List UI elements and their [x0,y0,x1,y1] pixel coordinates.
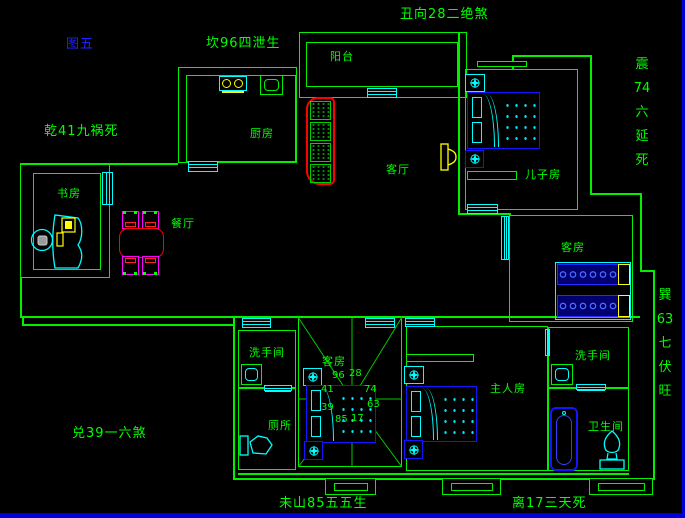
floor-plan-canvas: 96 28 41 74 39 63 85 17 [0,0,685,518]
bathtub [550,407,578,471]
burner-icon [222,79,231,88]
wall-top-left [20,163,178,165]
dining-chair [122,211,139,229]
plants [306,97,335,185]
vtxt-char: 七 [658,337,671,350]
son-room-window [467,204,498,214]
compass-number: 96 [332,371,345,381]
bunk-pillow [618,264,630,285]
room-label-kitchen: 厨房 [250,128,274,139]
master-window [405,318,435,327]
washroom-right-sink [551,364,573,385]
nightstand [303,368,322,386]
vtxt-char: 63 [657,313,674,326]
dining-chair [122,256,139,275]
right-outer-wall-v3 [653,270,655,480]
son-room-top-shelf [477,61,527,67]
porch-step-inner [451,483,493,491]
corridor-wall-bottom [22,324,233,326]
washroom-left-divider-window [264,385,292,391]
wall-left-vertical [20,278,22,318]
bottom-block-left-wall [233,316,235,480]
toilet-left [239,433,275,458]
room-label-bathroom-right: 卫生间 [588,421,624,432]
pillow [472,97,482,118]
pillow [311,416,321,437]
washroom-left-sink [241,364,262,385]
room-label-washroom-left: 洗手间 [249,347,285,358]
fengshui-qian-label: 乾41九祸死 [44,125,119,138]
pillow [411,391,421,412]
washroom-left-window [242,318,271,328]
balcony-inner-wall [306,42,458,87]
vtxt-char: 震 [635,58,648,71]
blanket-fold [322,387,334,441]
corridor-wall-top [22,316,233,318]
son-bed [467,92,540,149]
fengshui-wei-label: 未山85五五生 [279,497,368,510]
kitchen-sink [260,75,283,95]
nightstand [404,440,423,459]
fengshui-xun-label: 巽 63 七 伏 旺 [656,289,674,398]
bottom-inner-wall [238,473,629,475]
blanket-fold [426,388,438,440]
fengshui-li-label: 离17三天死 [512,497,587,510]
room-label-son: 儿子房 [525,169,561,180]
kitchen-window [188,161,218,172]
nightstand [465,150,484,168]
compass-number: 41 [321,385,334,395]
mattress [439,391,474,438]
bunk-pillow [618,295,630,317]
nightstand [404,366,424,384]
sink-basin [264,79,279,91]
room-label-guest-mid: 客房 [322,356,346,367]
bathtub-inner [556,415,572,465]
bunk-bed [557,264,619,285]
right-outer-wall-v2 [640,193,642,272]
dining-table [119,228,164,258]
fengshui-chou-label: 丑向28二绝煞 [400,8,489,21]
vtxt-char: 伏 [658,361,671,374]
porch-step [589,478,653,495]
vtxt-char: 旺 [658,385,671,398]
bunk-bed [557,295,619,317]
compass-number: 39 [321,403,334,413]
room-label-dining: 餐厅 [171,218,195,229]
plant-box [310,122,331,141]
nightstand [304,441,323,460]
compass-number: 74 [364,385,377,395]
right-step-h1 [590,193,642,195]
desk-and-chair [30,212,88,270]
right-top-wall-h [512,55,592,57]
vtxt-char: 六 [635,106,648,119]
compass-number: 85 [335,415,348,425]
pillow [472,122,482,143]
speaker-icon [440,143,458,171]
fengshui-kan-label: 坎96四泄生 [206,37,281,50]
guest-room-top-door [501,216,509,260]
porch-step [442,478,501,495]
room-label-master: 主人房 [490,383,526,394]
figure-label: 图五 [66,38,94,51]
vtxt-char: 延 [635,130,648,143]
compass-number: 17 [351,414,364,424]
dining-chair [142,211,159,229]
stove-front-bar [222,91,244,93]
study-door [102,172,113,205]
master-door [545,329,550,356]
bathtub-drain [562,411,566,415]
right-outer-wall-v1 [590,55,592,195]
living-son-divider-wall [458,32,460,215]
window-bottom-edge [0,513,685,518]
pillow [411,416,421,437]
pillow [311,390,321,411]
plant-box [310,101,331,120]
room-label-study: 书房 [57,188,81,199]
master-shelf [406,354,474,362]
room-label-balcony: 阳台 [330,51,354,62]
porch-step-inner [598,483,645,491]
vtxt-char: 死 [635,154,648,167]
vtxt-char: 巽 [658,289,671,302]
son-room-shelf [467,171,517,180]
fengshui-dui-label: 兑39一六煞 [72,427,147,440]
nightstand [465,74,485,92]
plant-box [310,143,331,162]
washroom-right-divider-window [576,384,606,390]
vtxt-char: 74 [634,82,651,95]
room-label-living: 客厅 [386,164,410,175]
room-label-guest-top: 客房 [561,242,585,253]
room-label-washroom-right: 洗手间 [575,350,611,361]
mattress [501,97,537,145]
fengshui-zhen-label: 震 74 六 延 死 [633,58,651,167]
sink-basin [245,368,258,381]
room-label-toilet-left: 厕所 [268,420,292,431]
plant-box [310,164,331,183]
porch-step-inner [334,483,368,491]
master-bed [406,386,477,442]
compass-number: 28 [349,369,362,379]
corridor-wall-cap [22,316,24,326]
balcony-window [367,88,397,98]
blanket-fold [487,94,499,147]
toilet-right [597,429,627,473]
burner-icon [234,79,243,88]
compass-number: 63 [367,400,380,410]
porch-step [325,478,376,495]
stove [219,76,247,91]
dining-chair [142,256,159,275]
sink-basin [555,368,569,381]
